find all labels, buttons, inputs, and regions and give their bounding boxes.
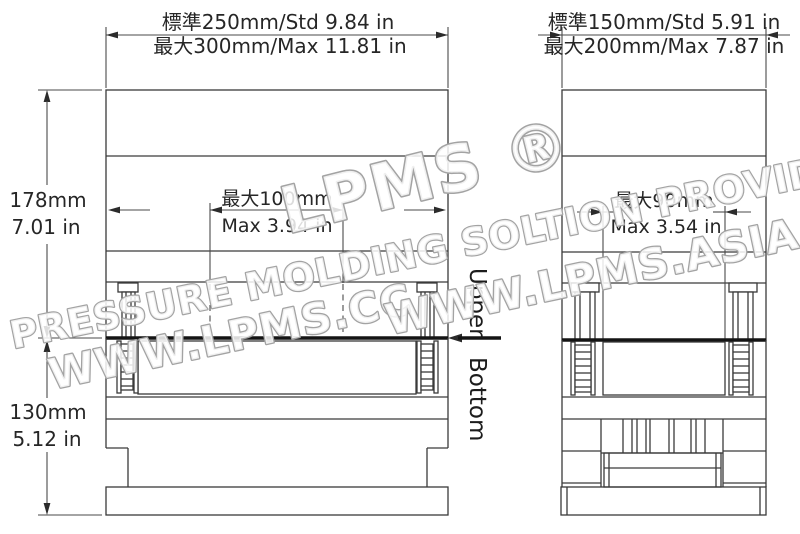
side-spring-guide-left xyxy=(571,342,595,395)
front-lower-height-in-label: 5.12 in xyxy=(12,427,81,451)
front-upper-height-mm-label: 178mm xyxy=(9,188,86,212)
front-width-standard-label: 標準250mm/Std 9.84 in xyxy=(162,10,395,34)
side-width-max-label: 最大200mm/Max 7.87 in xyxy=(544,34,785,58)
side-width-standard-label: 標準150mm/Std 5.91 in xyxy=(548,10,781,34)
spring-guide-right xyxy=(417,341,438,393)
front-upper-height-in-label: 7.01 in xyxy=(11,215,80,239)
bottom-side-label: Bottom xyxy=(464,357,490,441)
front-width-max-label: 最大300mm/Max 11.81 in xyxy=(153,34,406,58)
side-guide-pin-right xyxy=(729,283,757,340)
front-lower-height-mm-label: 130mm xyxy=(9,400,86,424)
side-spring-guide-right xyxy=(729,342,753,395)
mold-dimension-drawing: 標準250mm/Std 9.84 in 最大300mm/Max 11.81 in… xyxy=(0,0,800,534)
